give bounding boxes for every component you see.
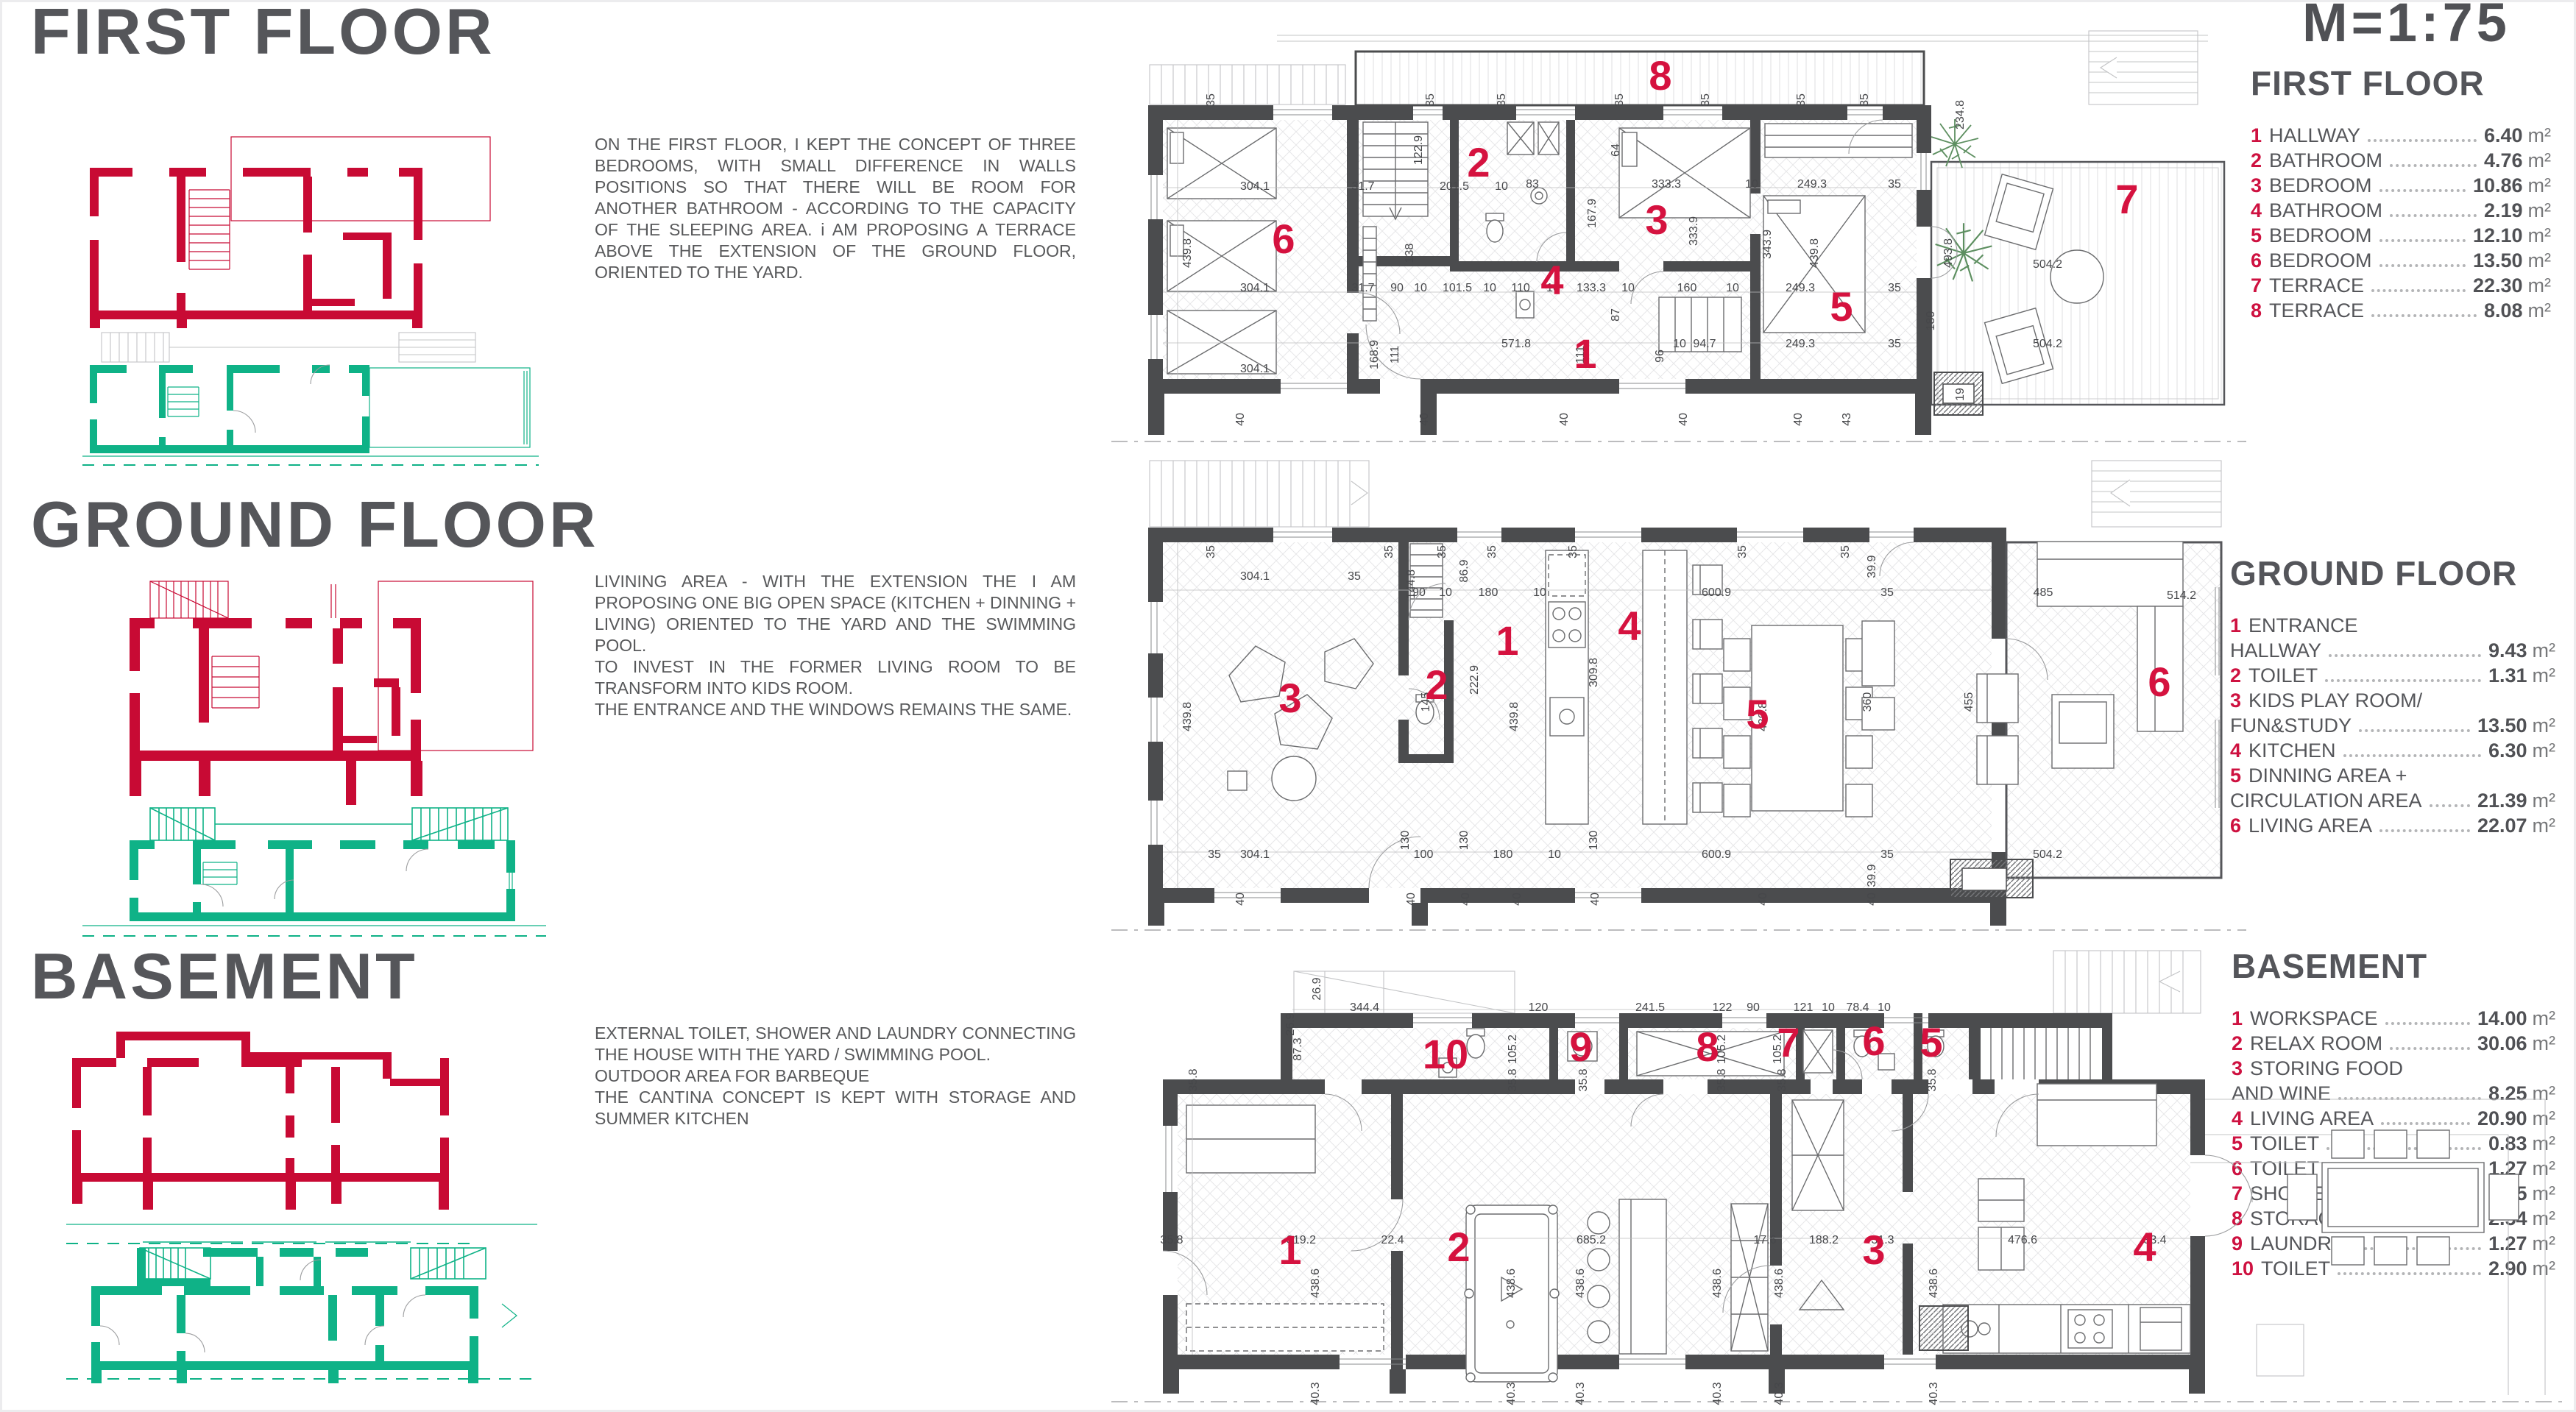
- svg-text:438.6: 438.6: [1309, 1269, 1322, 1298]
- svg-text:39.9: 39.9: [1866, 555, 1878, 578]
- svg-text:439.8: 439.8: [1181, 702, 1194, 731]
- svg-text:7: 7: [2115, 176, 2138, 222]
- svg-text:504.2: 504.2: [2033, 848, 2062, 861]
- svg-text:130: 130: [1399, 831, 1412, 851]
- svg-text:40: 40: [1418, 413, 1431, 426]
- svg-text:504.2: 504.2: [2033, 258, 2062, 271]
- legend-rows: 1HALLWAY6.40m²2BATHROOM4.76m²3BEDROOM10.…: [2251, 122, 2551, 322]
- svg-text:121: 121: [1794, 1001, 1814, 1014]
- svg-text:35: 35: [1436, 545, 1448, 558]
- legend-title: BASEMENT: [2232, 946, 2555, 986]
- svg-text:101.5: 101.5: [1443, 282, 1472, 294]
- svg-text:40: 40: [1234, 893, 1247, 906]
- legend-row: FUN&STUDY13.50m²: [2230, 712, 2555, 737]
- svg-text:1: 1: [1574, 330, 1596, 377]
- legend-first-floor: FIRST FLOOR 1HALLWAY6.40m²2BATHROOM4.76m…: [2251, 63, 2551, 322]
- legend-row: 1HALLWAY6.40m²: [2251, 122, 2551, 147]
- svg-text:35.8: 35.8: [1187, 1068, 1200, 1091]
- svg-text:438.6: 438.6: [1711, 1269, 1724, 1298]
- outside-stairs-top-right: [2089, 31, 2198, 104]
- svg-text:110: 110: [1511, 282, 1530, 294]
- legend-row: 3STORING FOOD: [2232, 1055, 2555, 1080]
- legend-row: 4KITCHEN6.30m²: [2230, 737, 2555, 762]
- svg-text:40: 40: [1677, 413, 1690, 426]
- svg-text:160: 160: [1677, 282, 1697, 294]
- svg-text:168.9: 168.9: [1368, 340, 1381, 369]
- svg-text:35: 35: [1208, 848, 1221, 861]
- svg-text:35: 35: [1205, 93, 1217, 107]
- svg-text:493.8: 493.8: [1942, 238, 1955, 268]
- legend-title: GROUND FLOOR: [2230, 553, 2555, 593]
- legend-row: 8STORAGE2.54m²: [2232, 1205, 2555, 1230]
- svg-text:40.3: 40.3: [1574, 1382, 1587, 1405]
- extension-outline: [2006, 542, 2221, 878]
- svg-text:249.3: 249.3: [1797, 178, 1827, 191]
- svg-text:35.8: 35.8: [1160, 1234, 1183, 1246]
- svg-text:35: 35: [1880, 586, 1894, 599]
- svg-text:31.7: 31.7: [1351, 282, 1374, 294]
- svg-text:105.2: 105.2: [1716, 1035, 1728, 1064]
- svg-text:4: 4: [2133, 1224, 2156, 1270]
- svg-text:122: 122: [1713, 1001, 1733, 1014]
- svg-text:35.8: 35.8: [1776, 1068, 1788, 1091]
- svg-text:6: 6: [1272, 216, 1295, 262]
- svg-text:40.3: 40.3: [1928, 1382, 1940, 1405]
- thumbnail-basement-existing: [66, 1027, 508, 1210]
- svg-text:39.9: 39.9: [1866, 864, 1878, 887]
- furniture: [1228, 542, 2183, 824]
- svg-text:180: 180: [1925, 311, 1937, 331]
- svg-text:5: 5: [1746, 691, 1769, 737]
- svg-text:33.4: 33.4: [2143, 1234, 2166, 1246]
- outside-stairs-top-right: [2053, 951, 2201, 1013]
- svg-text:40: 40: [1459, 893, 1472, 906]
- svg-text:10: 10: [1621, 282, 1635, 294]
- svg-text:10: 10: [1439, 586, 1452, 599]
- svg-text:9: 9: [1569, 1023, 1592, 1070]
- svg-text:35.8: 35.8: [1926, 1068, 1939, 1091]
- svg-text:309.8: 309.8: [1588, 658, 1600, 687]
- svg-text:35: 35: [1567, 545, 1579, 558]
- svg-text:455: 455: [1963, 692, 1975, 712]
- svg-text:40: 40: [1234, 413, 1247, 426]
- svg-text:40: 40: [1792, 413, 1805, 426]
- svg-text:35: 35: [1424, 93, 1437, 107]
- svg-text:35: 35: [1613, 93, 1626, 107]
- terrace-8: [1356, 52, 1924, 105]
- svg-text:111: 111: [1389, 346, 1401, 363]
- svg-text:31.7: 31.7: [1351, 180, 1374, 193]
- svg-text:249.3: 249.3: [1786, 338, 1815, 350]
- svg-text:333.3: 333.3: [1652, 178, 1681, 191]
- svg-text:40.3: 40.3: [1773, 1382, 1786, 1405]
- svg-text:10: 10: [1673, 338, 1686, 350]
- svg-text:105.2: 105.2: [1507, 1035, 1519, 1064]
- svg-text:222.9: 222.9: [1468, 665, 1481, 695]
- svg-text:234.8: 234.8: [1954, 100, 1967, 130]
- svg-text:304.1: 304.1: [1240, 363, 1270, 375]
- svg-text:333.9: 333.9: [1688, 216, 1700, 246]
- svg-text:304.1: 304.1: [1240, 180, 1270, 193]
- legend-row: 5TOILET0.83m²: [2232, 1130, 2555, 1155]
- svg-text:40: 40: [1405, 893, 1418, 906]
- legend-row: 1WORKSPACE14.00m²: [2232, 1005, 2555, 1030]
- legend-row: 6LIVING AREA22.07m²: [2230, 812, 2555, 837]
- svg-text:10: 10: [1726, 282, 1739, 294]
- svg-text:10: 10: [1745, 178, 1758, 191]
- svg-text:685.2: 685.2: [1577, 1234, 1606, 1246]
- outside-structure-top-left: [1294, 971, 1515, 1013]
- legend-row: 6BEDROOM13.50m²: [2251, 247, 2551, 272]
- svg-text:2: 2: [1425, 661, 1448, 708]
- description-ground-floor: LIVINING AREA - WITH THE EXTENSION THE I…: [595, 571, 1076, 720]
- fireplace: [1950, 859, 2033, 898]
- legend-row: 2TOILET1.31m²: [2230, 662, 2555, 687]
- svg-text:31.3: 31.3: [1871, 1234, 1894, 1246]
- svg-text:122.9: 122.9: [1412, 135, 1425, 165]
- svg-text:4: 4: [1540, 257, 1563, 303]
- svg-text:144.8: 144.8: [1405, 570, 1418, 599]
- legend-rows: 1ENTRANCEHALLWAY9.43m²2TOILET1.31m²3KIDS…: [2230, 612, 2555, 837]
- legend-rows: 1WORKSPACE14.00m²2RELAX ROOM30.06m²3STOR…: [2232, 1005, 2555, 1280]
- svg-text:40: 40: [1589, 893, 1602, 906]
- svg-text:40: 40: [1558, 413, 1571, 426]
- legend-row: 1ENTRANCE: [2230, 612, 2555, 637]
- svg-text:1: 1: [1496, 617, 1518, 664]
- svg-text:439.8: 439.8: [1508, 702, 1521, 731]
- svg-text:35: 35: [1888, 338, 1901, 350]
- section-title-first-floor: FIRST FLOOR: [31, 0, 495, 69]
- thumbnail-first-floor-proposed: [82, 330, 539, 469]
- walls: [1148, 528, 2006, 926]
- svg-text:35: 35: [1699, 93, 1712, 107]
- svg-text:145: 145: [1420, 692, 1432, 712]
- svg-text:201.5: 201.5: [1440, 180, 1469, 193]
- svg-text:40: 40: [1511, 893, 1524, 906]
- svg-text:167.9: 167.9: [1586, 199, 1599, 228]
- svg-text:188.2: 188.2: [1809, 1234, 1839, 1246]
- svg-text:86.9: 86.9: [1458, 559, 1471, 582]
- svg-text:87.3: 87.3: [1292, 1037, 1304, 1060]
- svg-text:130: 130: [1458, 831, 1471, 851]
- svg-text:10: 10: [1483, 282, 1496, 294]
- svg-text:344.4: 344.4: [1350, 1001, 1379, 1014]
- svg-text:438.6: 438.6: [1773, 1269, 1786, 1298]
- legend-row: 5DINNING AREA +: [2230, 762, 2555, 787]
- legend-row: 5BEDROOM12.10m²: [2251, 222, 2551, 247]
- svg-text:35: 35: [1348, 570, 1361, 583]
- svg-text:133.3: 133.3: [1577, 282, 1606, 294]
- svg-text:130: 130: [1588, 831, 1600, 851]
- svg-text:504.2: 504.2: [2033, 338, 2062, 350]
- svg-text:40.3: 40.3: [1711, 1382, 1724, 1405]
- svg-text:94.7: 94.7: [1693, 338, 1716, 350]
- svg-text:10: 10: [1533, 586, 1546, 599]
- svg-text:343.9: 343.9: [1761, 230, 1774, 259]
- outside-stairs-top-left: [1150, 65, 1345, 104]
- svg-text:83: 83: [1526, 178, 1539, 191]
- legend-row: HALLWAY9.43m²: [2230, 637, 2555, 662]
- thumbnail-first-floor-existing: [82, 130, 495, 328]
- legend-row: 8TERRACE8.08m²: [2251, 297, 2551, 322]
- svg-text:439.8: 439.8: [1181, 238, 1194, 268]
- svg-text:35: 35: [1496, 93, 1508, 107]
- legend-row: CIRCULATION AREA21.39m²: [2230, 787, 2555, 812]
- svg-text:35.8: 35.8: [1577, 1068, 1590, 1091]
- svg-text:4: 4: [1618, 603, 1641, 649]
- walls: [1163, 1013, 2205, 1394]
- svg-text:26.9: 26.9: [1284, 1012, 1297, 1035]
- legend-basement: BASEMENT 1WORKSPACE14.00m²2RELAX ROOM30.…: [2232, 946, 2555, 1280]
- svg-text:10: 10: [1822, 1001, 1835, 1014]
- svg-text:180: 180: [1479, 586, 1498, 599]
- svg-text:600.9: 600.9: [1702, 848, 1731, 861]
- svg-text:35: 35: [1205, 545, 1217, 558]
- legend-row: 4BATHROOM2.19m²: [2251, 197, 2551, 222]
- svg-text:10: 10: [1546, 282, 1560, 294]
- svg-text:26.9: 26.9: [1311, 977, 1323, 1000]
- thumbnail-basement-proposed: [66, 1216, 537, 1385]
- svg-text:43: 43: [1841, 413, 1853, 426]
- thumbnail-ground-floor-existing: [82, 575, 539, 805]
- svg-text:35: 35: [1383, 545, 1395, 558]
- svg-text:249.3: 249.3: [1786, 282, 1815, 294]
- svg-text:78.4: 78.4: [1846, 1001, 1869, 1014]
- svg-text:10: 10: [1548, 848, 1561, 861]
- svg-text:120: 120: [1529, 1001, 1549, 1014]
- svg-text:90: 90: [1390, 282, 1404, 294]
- outside-stairs-top-right: [2092, 461, 2221, 527]
- legend-row: AND WINE8.25m²: [2232, 1080, 2555, 1105]
- legend-ground-floor: GROUND FLOOR 1ENTRANCEHALLWAY9.43m²2TOIL…: [2230, 553, 2555, 837]
- svg-text:10: 10: [1495, 180, 1508, 193]
- legend-row: 2BATHROOM4.76m²: [2251, 147, 2551, 172]
- svg-text:35: 35: [1888, 282, 1901, 294]
- legend-row: 9LAUNDRY1.27m²: [2232, 1230, 2555, 1255]
- svg-text:35: 35: [1839, 545, 1852, 558]
- legend-row: 7TERRACE22.30m²: [2251, 272, 2551, 297]
- svg-text:5: 5: [1919, 1019, 1942, 1065]
- svg-text:2: 2: [1467, 139, 1490, 185]
- svg-text:319.2: 319.2: [1287, 1234, 1316, 1246]
- svg-text:19: 19: [1954, 388, 1967, 401]
- legend-row: 4LIVING AREA20.90m²: [2232, 1105, 2555, 1130]
- svg-text:439.8: 439.8: [1808, 238, 1821, 268]
- svg-text:35: 35: [1736, 545, 1749, 558]
- svg-text:87: 87: [1610, 308, 1622, 322]
- svg-text:2: 2: [1447, 1224, 1470, 1270]
- svg-text:35: 35: [1858, 93, 1871, 107]
- svg-text:90: 90: [1747, 1001, 1760, 1014]
- svg-text:35: 35: [1888, 178, 1901, 191]
- svg-text:40: 40: [1757, 893, 1769, 906]
- svg-text:10: 10: [1423, 1031, 1468, 1077]
- svg-text:35: 35: [1880, 848, 1894, 861]
- tree-icon: [1931, 119, 1992, 281]
- svg-text:138: 138: [1404, 244, 1416, 263]
- svg-text:600.9: 600.9: [1702, 586, 1731, 599]
- svg-text:40.3: 40.3: [1309, 1382, 1322, 1405]
- svg-text:571.8: 571.8: [1501, 338, 1531, 350]
- legend-row: 10TOILET2.90m²: [2232, 1255, 2555, 1280]
- svg-text:35.8: 35.8: [1716, 1068, 1728, 1091]
- svg-text:476.6: 476.6: [2008, 1234, 2037, 1246]
- legend-title: FIRST FLOOR: [2251, 63, 2551, 103]
- thumbnail-ground-floor-proposed: [82, 806, 546, 942]
- svg-text:35: 35: [1795, 93, 1808, 107]
- svg-text:439.8: 439.8: [1757, 702, 1769, 731]
- planter: [1934, 372, 1983, 415]
- svg-text:241.5: 241.5: [1635, 1001, 1665, 1014]
- svg-text:6: 6: [1862, 1018, 1885, 1064]
- ground-floor-plan-drawing: 3535353535353539.9304.135144.89010180108…: [1104, 455, 2252, 934]
- svg-text:3: 3: [1862, 1227, 1885, 1273]
- svg-text:514.2: 514.2: [2167, 589, 2196, 602]
- svg-text:360: 360: [1861, 692, 1874, 712]
- svg-text:100: 100: [1414, 848, 1434, 861]
- svg-text:8: 8: [1696, 1023, 1719, 1070]
- svg-text:7: 7: [1777, 1019, 1800, 1065]
- svg-text:22.4: 22.4: [1381, 1234, 1404, 1246]
- svg-text:6: 6: [2148, 659, 2170, 705]
- svg-text:40: 40: [1866, 893, 1878, 906]
- svg-text:105.2: 105.2: [1772, 1035, 1784, 1064]
- svg-text:17.6: 17.6: [1753, 1234, 1776, 1246]
- walls: [1148, 105, 1931, 435]
- svg-text:304.1: 304.1: [1240, 282, 1270, 294]
- svg-text:35.8: 35.8: [1507, 1068, 1519, 1091]
- svg-text:304.1: 304.1: [1240, 570, 1270, 583]
- svg-text:10: 10: [1878, 1001, 1891, 1014]
- svg-text:64: 64: [1610, 143, 1622, 157]
- svg-text:438.6: 438.6: [1574, 1269, 1587, 1298]
- legend-row: 7SHOWER0.95m²: [2232, 1180, 2555, 1205]
- terrace-7: [1931, 162, 2224, 405]
- svg-text:1: 1: [1278, 1227, 1301, 1273]
- bbq-block: [2257, 1324, 2304, 1376]
- svg-text:304.1: 304.1: [1240, 848, 1270, 861]
- legend-row: 3BEDROOM10.86m²: [2251, 172, 2551, 197]
- svg-text:3: 3: [1278, 675, 1301, 721]
- description-basement: EXTERNAL TOILET, SHOWER AND LAUNDRY CONN…: [595, 1023, 1076, 1129]
- svg-text:3: 3: [1645, 196, 1668, 243]
- furniture: [1167, 122, 2103, 383]
- legend-row: 6TOILET1.27m²: [2232, 1155, 2555, 1180]
- description-first-floor: ON THE FIRST FLOOR, I KEPT THE CONCEPT O…: [595, 134, 1076, 283]
- svg-text:8: 8: [1649, 52, 1671, 99]
- appliance-block: [1919, 1306, 1968, 1350]
- section-title-basement: BASEMENT: [31, 939, 418, 1014]
- svg-text:10: 10: [1414, 282, 1427, 294]
- svg-text:438.6: 438.6: [1505, 1269, 1518, 1298]
- svg-text:40.3: 40.3: [1505, 1382, 1518, 1405]
- svg-text:35: 35: [1486, 545, 1498, 558]
- svg-text:90: 90: [1412, 586, 1426, 599]
- legend-row: 3KIDS PLAY ROOM/: [2230, 687, 2555, 712]
- svg-text:111: 111: [1574, 346, 1587, 363]
- outside-stairs-top-left: [1150, 461, 1369, 527]
- presentation-board: FIRST FLOOR GROUND FLOOR BASEMENT M=1:75…: [0, 0, 2576, 1412]
- svg-text:180: 180: [1493, 848, 1513, 861]
- svg-text:485: 485: [2034, 586, 2053, 599]
- first-floor-plan-drawing: 35353535353535234.8304.131.7122.9201.510…: [1104, 6, 2252, 447]
- svg-text:5: 5: [1830, 283, 1853, 330]
- svg-text:438.6: 438.6: [1928, 1269, 1940, 1298]
- drawing-scale-label: M=1:75: [2302, 0, 2510, 54]
- legend-row: 2RELAX ROOM30.06m²: [2232, 1030, 2555, 1055]
- svg-text:96: 96: [1654, 350, 1666, 363]
- section-title-ground-floor: GROUND FLOOR: [31, 487, 599, 562]
